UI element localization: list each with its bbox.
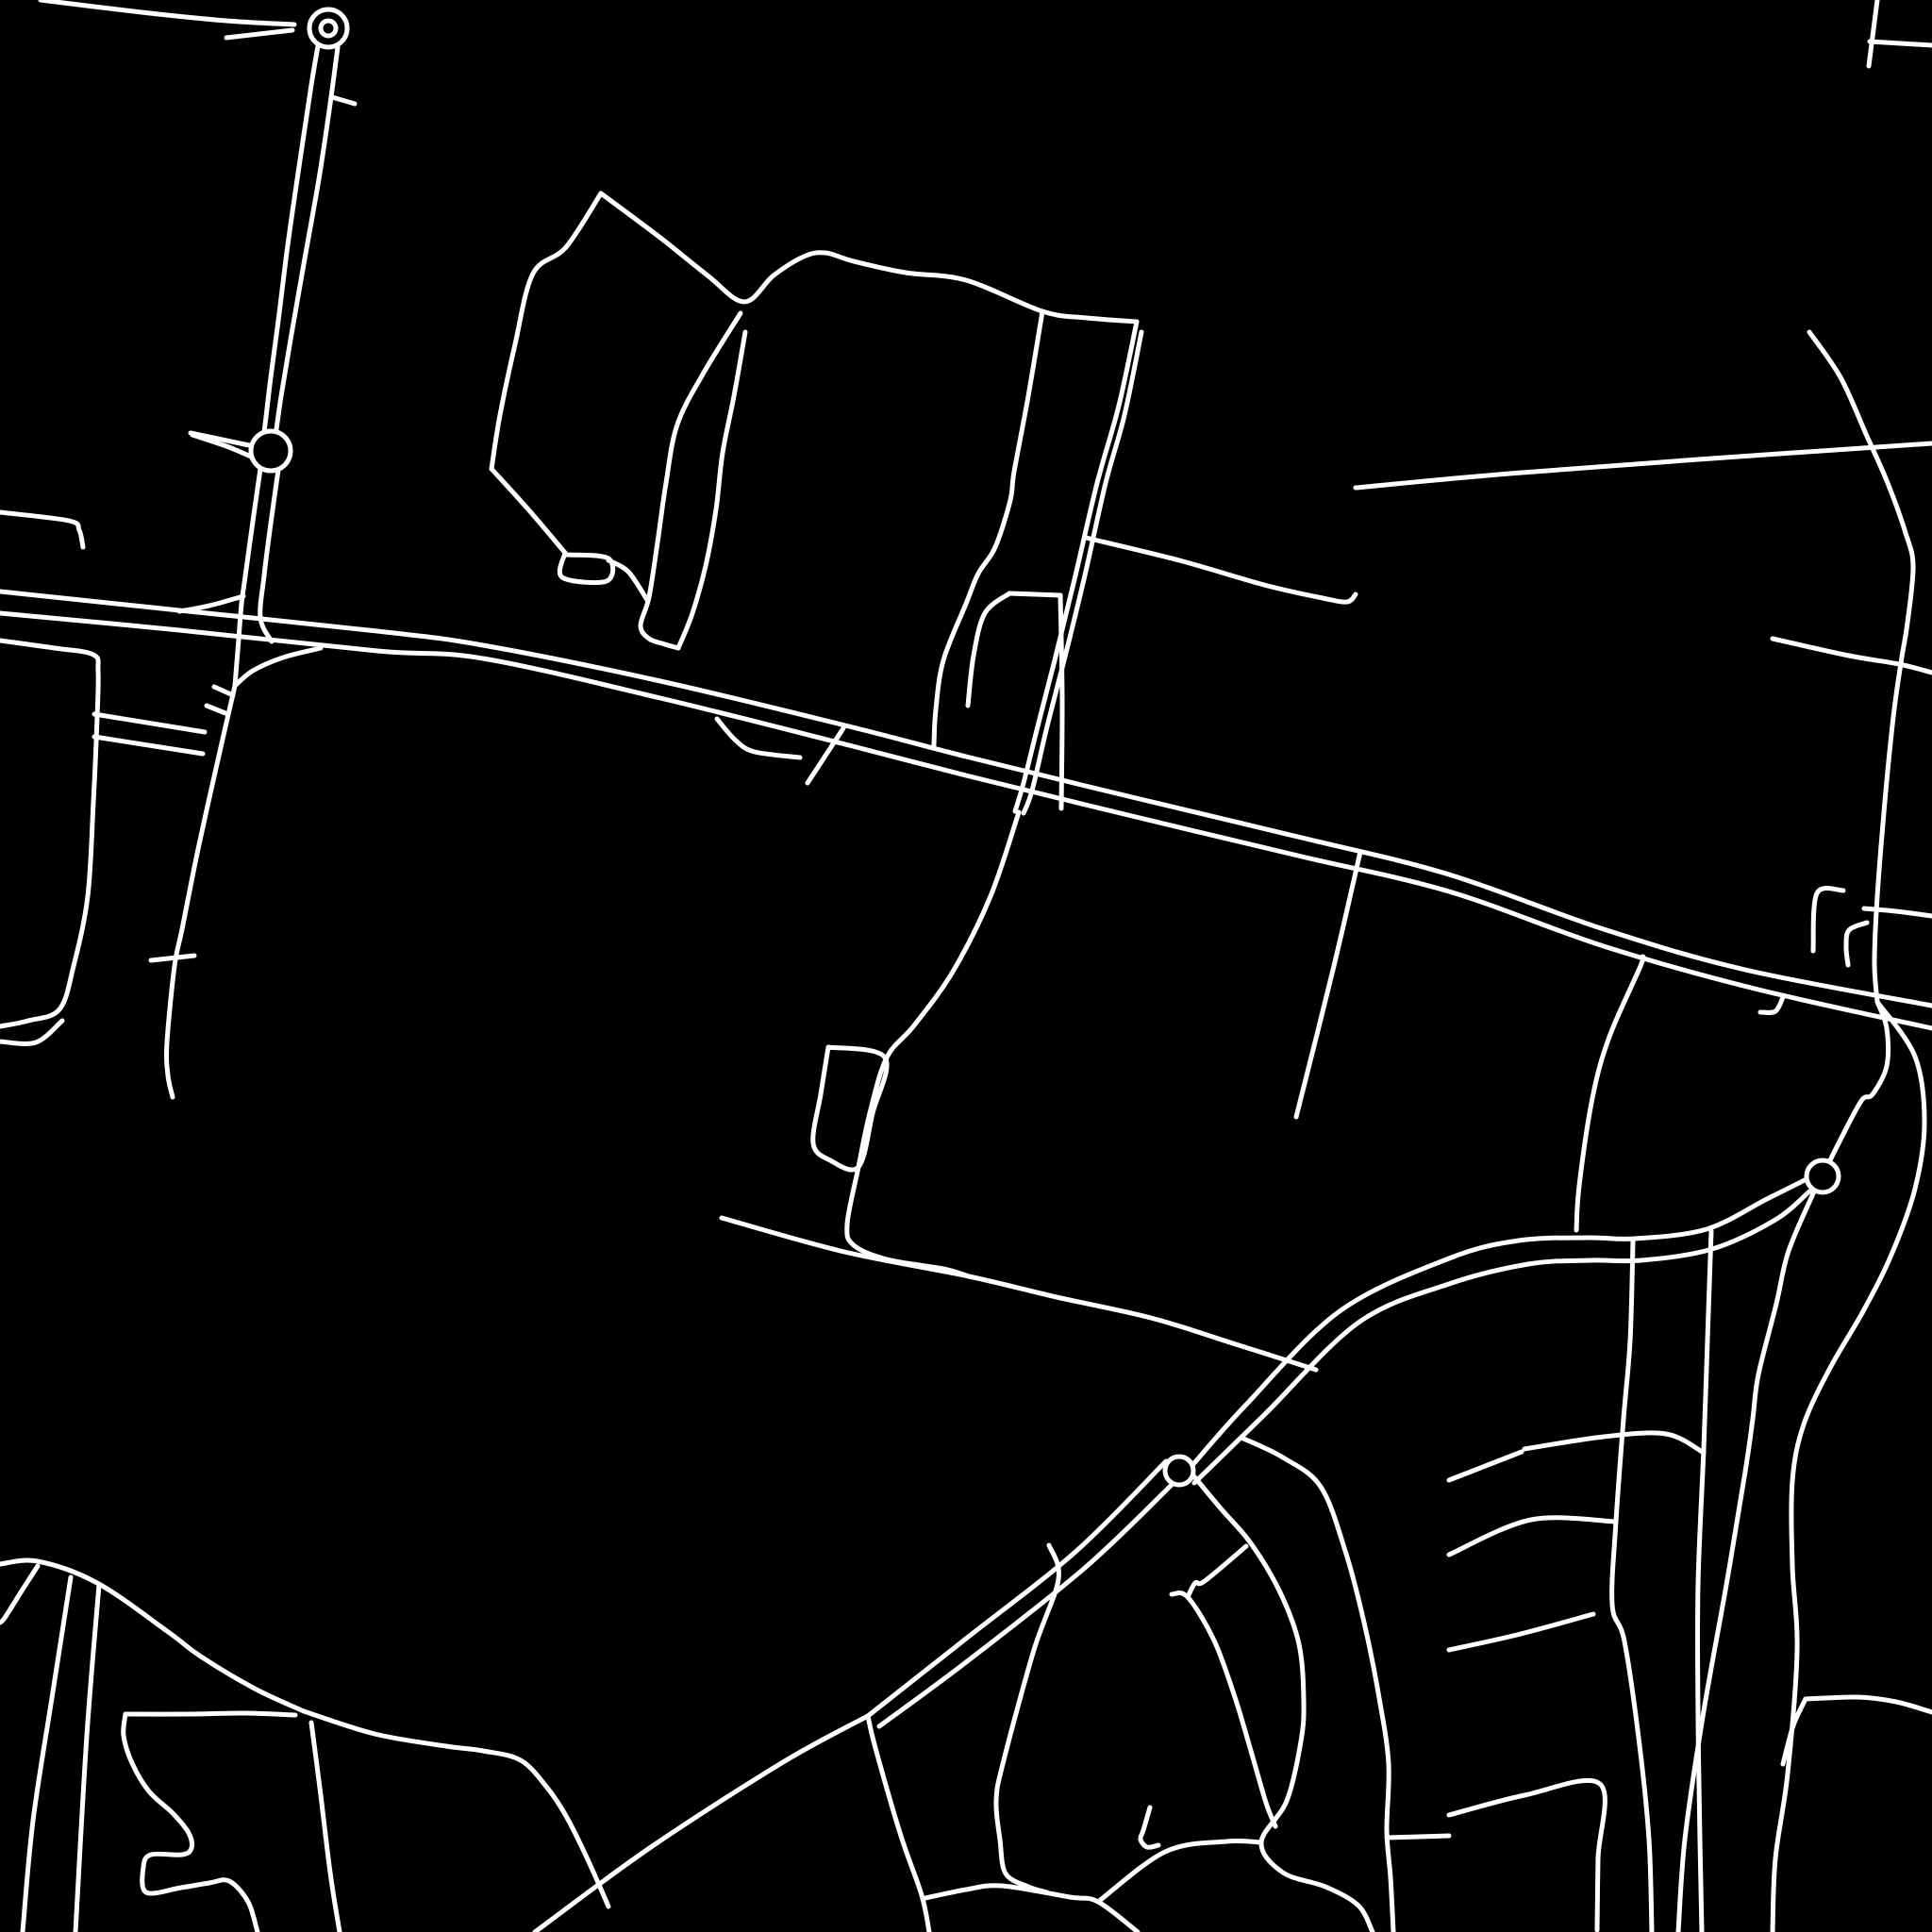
roundabout-mid-west: [251, 431, 291, 471]
map-viewport[interactable]: [0, 0, 1932, 1932]
road-parking-loop-right: [1060, 595, 1062, 808]
roundabout-residential-east: [1807, 1160, 1839, 1192]
road-outer-arc-connector: [1387, 1836, 1449, 1838]
roundabout-residential-west: [1165, 1457, 1193, 1485]
road-parking-loop-top: [1009, 593, 1060, 595]
road-west-road-twin: [125, 1713, 295, 1715]
road-network-svg: [0, 0, 1932, 1932]
roundabout-top-entry: [321, 21, 336, 36]
